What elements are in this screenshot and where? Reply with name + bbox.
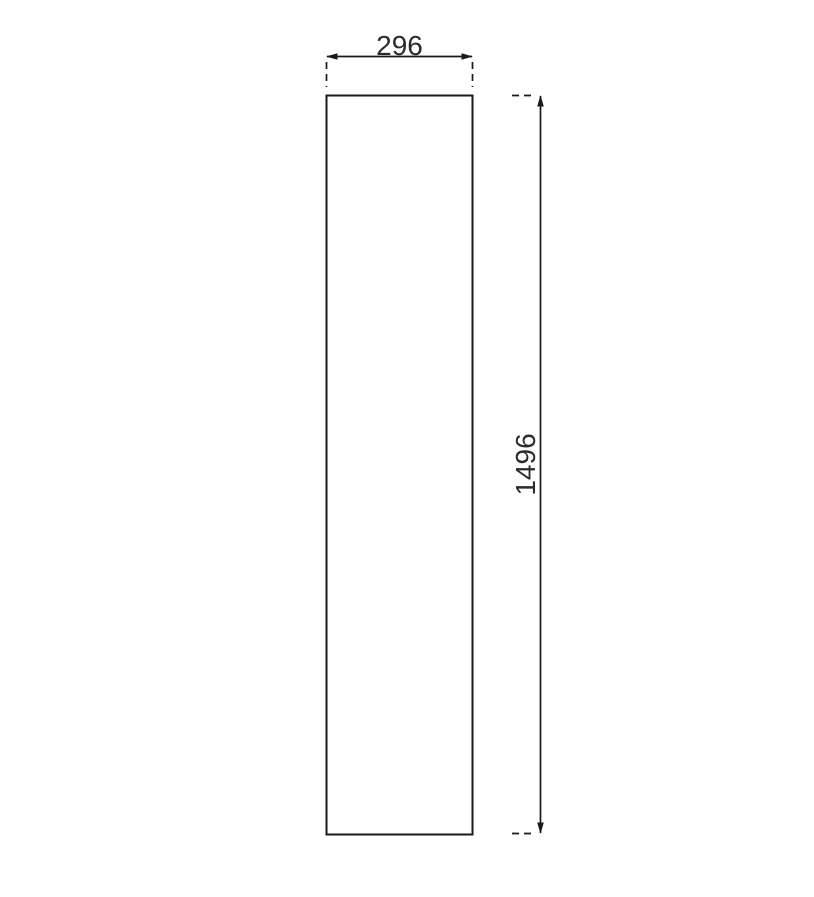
- height-dimension-value: 1496: [510, 433, 541, 495]
- width-dimension-value: 296: [376, 30, 423, 61]
- height-arrow-bottom-icon: [537, 823, 544, 835]
- drawing-svg: 296 1496: [0, 0, 814, 897]
- width-arrow-right-icon: [462, 53, 474, 60]
- height-arrow-top-icon: [537, 95, 544, 107]
- height-dimension: 1496: [510, 95, 544, 834]
- part-outline: [327, 96, 473, 835]
- width-arrow-left-icon: [326, 53, 338, 60]
- drawing-canvas: 296 1496: [0, 0, 814, 897]
- width-dimension: 296: [326, 30, 473, 87]
